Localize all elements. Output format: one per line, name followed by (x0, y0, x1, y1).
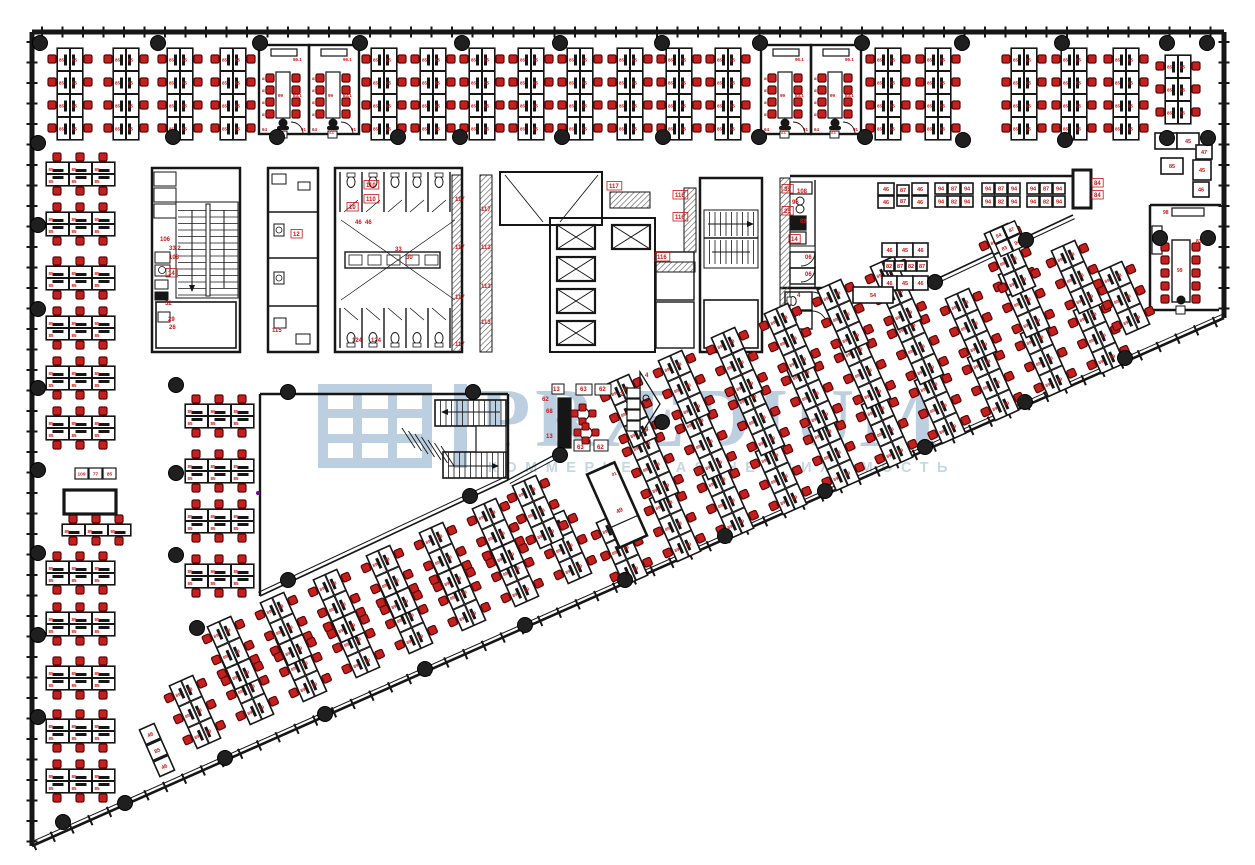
column-dot (655, 415, 670, 430)
svg-text:108: 108 (169, 255, 180, 261)
svg-text:85: 85 (520, 104, 526, 109)
svg-text:85: 85 (169, 81, 175, 86)
svg-text:85: 85 (814, 76, 819, 81)
chair-icon (1161, 269, 1169, 277)
chair-icon (818, 74, 826, 82)
desk-cluster: 858585858585 (46, 257, 115, 299)
svg-text:85: 85 (115, 58, 121, 63)
print-area (552, 384, 611, 451)
svg-text:124: 124 (371, 338, 382, 344)
svg-text:85: 85 (95, 333, 101, 338)
chair-icon (411, 101, 419, 109)
elevator-shaft (557, 321, 595, 345)
room-number-label: 113 (481, 320, 491, 326)
chair-icon (53, 357, 61, 365)
chair-icon (768, 98, 776, 106)
desk-cluster: 8585858585858585 (211, 48, 255, 140)
chair-icon (952, 55, 960, 63)
chair-icon (76, 441, 84, 449)
column-dot (656, 130, 671, 145)
chair-icon (158, 55, 166, 63)
chair-icon (99, 203, 107, 211)
svg-text:85: 85 (1167, 111, 1173, 116)
svg-text:85: 85 (730, 104, 736, 109)
chair-icon (545, 78, 553, 86)
desk-cluster: 8585858585858585 (158, 48, 202, 140)
chair-icon (794, 74, 802, 82)
hatched-walls (452, 175, 790, 352)
chair-icon (76, 637, 84, 645)
chair-icon (292, 98, 300, 106)
svg-text:94: 94 (1011, 187, 1018, 193)
floor-plan-svg: 8585858585858585858585858585858585858585… (0, 0, 1255, 865)
cafe-table: 46 (878, 196, 894, 208)
room-number-label: 117 (455, 295, 465, 301)
chair-icon (342, 98, 350, 106)
desk-cluster: 898989898989 (641, 485, 709, 566)
svg-text:87: 87 (951, 187, 957, 193)
chair-icon (316, 98, 324, 106)
column-dot (1153, 231, 1168, 246)
desk-cluster: 858585858585 (46, 307, 115, 349)
chair-icon (902, 78, 910, 86)
svg-text:85: 85 (764, 76, 769, 81)
chair-icon (545, 101, 553, 109)
svg-text:85: 85 (1115, 81, 1121, 86)
svg-text:83.1: 83.1 (293, 93, 302, 98)
room-number-label: 4 (645, 373, 649, 379)
chair-icon (53, 203, 61, 211)
svg-text:46: 46 (917, 200, 923, 206)
chair-icon (211, 101, 219, 109)
desk-cluster: 898989898989 (853, 391, 921, 472)
chair-icon (247, 101, 255, 109)
svg-text:85: 85 (520, 81, 526, 86)
chair-icon (693, 101, 701, 109)
svg-text:85: 85 (72, 736, 78, 741)
svg-text:85: 85 (1063, 81, 1069, 86)
svg-text:85: 85 (386, 127, 392, 132)
chair-icon (1038, 101, 1046, 109)
column-dot (753, 36, 768, 51)
svg-text:85: 85 (211, 464, 217, 469)
chair-icon (693, 55, 701, 63)
column-dot (31, 546, 46, 561)
svg-text:85: 85 (814, 100, 819, 105)
desk-cluster: 858585858585 (185, 450, 254, 492)
svg-text:85: 85 (940, 58, 946, 63)
svg-text:85: 85 (49, 786, 55, 791)
cafe-table: 85 (1161, 158, 1183, 174)
cafe-table: 54 (853, 287, 893, 303)
column-dot (655, 36, 670, 51)
accent-dot (256, 491, 260, 495)
svg-text:85: 85 (1026, 81, 1032, 86)
svg-text:85: 85 (88, 529, 94, 534)
svg-text:10: 10 (349, 205, 356, 211)
column-dot (31, 302, 46, 317)
chair-icon (192, 395, 200, 403)
svg-text:85: 85 (188, 409, 194, 414)
svg-text:85: 85 (422, 58, 428, 63)
chair-icon (362, 78, 370, 86)
chair-icon (247, 78, 255, 86)
chair-icon (1140, 55, 1148, 63)
chair-icon (140, 124, 148, 132)
stairwell-left (152, 168, 240, 352)
svg-text:85: 85 (95, 774, 101, 779)
svg-text:124: 124 (352, 338, 363, 344)
svg-text:85: 85 (927, 81, 933, 86)
svg-text:85: 85 (386, 58, 392, 63)
svg-text:85: 85 (49, 671, 55, 676)
chair-icon (902, 101, 910, 109)
chair-icon (53, 341, 61, 349)
column-dot (31, 136, 46, 151)
chair-icon (76, 407, 84, 415)
chair-icon (247, 55, 255, 63)
chair-icon (952, 101, 960, 109)
chair-icon (292, 74, 300, 82)
chair-icon (545, 124, 553, 132)
svg-text:94: 94 (985, 187, 992, 193)
desk-cluster: 858585858585 (46, 203, 115, 245)
svg-text:85: 85 (730, 58, 736, 63)
svg-text:85: 85 (681, 127, 687, 132)
cafe-table: 94 (1027, 183, 1039, 194)
chair-icon (76, 586, 84, 594)
svg-text:96.1: 96.1 (343, 57, 352, 62)
chair-icon (1140, 124, 1148, 132)
chair-icon (266, 86, 274, 94)
svg-text:85: 85 (312, 112, 317, 117)
svg-text:21: 21 (329, 130, 335, 135)
column-dot (56, 815, 71, 830)
chair-icon (496, 78, 504, 86)
svg-text:4: 4 (797, 293, 801, 299)
cafe-table: 94 (1053, 196, 1065, 207)
svg-text:85: 85 (72, 786, 78, 791)
cafe-table: 87 (895, 261, 905, 271)
svg-text:85: 85 (95, 736, 101, 741)
svg-text:85: 85 (582, 81, 588, 86)
svg-text:85: 85 (632, 81, 638, 86)
svg-text:85: 85 (471, 104, 477, 109)
svg-text:85: 85 (95, 566, 101, 571)
svg-text:85: 85 (619, 127, 625, 132)
column-dot (166, 130, 181, 145)
svg-text:85: 85 (435, 104, 441, 109)
cafe-table: 47 (1196, 145, 1212, 159)
room-number-label: 62 (599, 387, 606, 393)
desk-cluster: 898989898989 (747, 438, 815, 519)
svg-text:85: 85 (59, 127, 65, 132)
svg-text:85: 85 (312, 76, 317, 81)
svg-text:85: 85 (927, 58, 933, 63)
desk-cluster: 8585858585858585 (608, 48, 652, 140)
svg-text:85: 85 (235, 81, 241, 86)
desk-cluster: 858585858585 (46, 603, 115, 645)
chair-icon (76, 357, 84, 365)
chair-icon (48, 124, 56, 132)
svg-text:85: 85 (877, 58, 883, 63)
column-dot (956, 133, 971, 148)
cafe-table: 82 (906, 261, 916, 271)
svg-text:85: 85 (484, 127, 490, 132)
chair-icon (1161, 282, 1169, 290)
svg-text:33.2: 33.2 (169, 246, 181, 252)
chair-icon (866, 101, 874, 109)
chair-icon (1156, 85, 1164, 93)
chair-icon (1088, 78, 1096, 86)
chair-icon (104, 101, 112, 109)
svg-text:94: 94 (1056, 200, 1063, 206)
svg-text:85: 85 (927, 104, 933, 109)
svg-text:85: 85 (235, 127, 241, 132)
room-number-label: 46 (355, 220, 362, 226)
chair-icon (558, 101, 566, 109)
svg-text:85: 85 (95, 229, 101, 234)
svg-text:85: 85 (1063, 104, 1069, 109)
chair-icon (1088, 124, 1096, 132)
svg-text:85: 85 (262, 112, 267, 117)
chair-icon (215, 484, 223, 492)
chair-icon (1156, 108, 1164, 116)
svg-text:85: 85 (111, 529, 117, 534)
svg-text:85: 85 (128, 58, 134, 63)
chair-icon (608, 78, 616, 86)
svg-text:117: 117 (481, 207, 491, 213)
chair-icon (644, 101, 652, 109)
desk-cluster: 858585858585 (46, 357, 115, 399)
chair-icon (768, 86, 776, 94)
chair-icon (1104, 124, 1112, 132)
chair-icon (194, 101, 202, 109)
chair-icon (99, 257, 107, 265)
svg-text:85: 85 (211, 526, 217, 531)
chair-icon (545, 55, 553, 63)
svg-text:85: 85 (49, 229, 55, 234)
svg-text:85: 85 (95, 383, 101, 388)
chair-icon (866, 78, 874, 86)
svg-text:85: 85 (72, 629, 78, 634)
chair-icon (238, 429, 246, 437)
chair-icon (316, 110, 324, 118)
cafe-table: 94 (982, 183, 994, 194)
svg-text:85: 85 (95, 578, 101, 583)
svg-text:68: 68 (546, 409, 553, 415)
chair-icon (238, 484, 246, 492)
svg-text:45: 45 (902, 281, 908, 287)
svg-text:85: 85 (49, 566, 55, 571)
column-dot (858, 130, 873, 145)
svg-text:85: 85 (764, 112, 769, 117)
svg-text:85: 85 (72, 383, 78, 388)
room-number-label: 117 (481, 207, 491, 213)
chair-icon (447, 78, 455, 86)
chair-icon (1088, 101, 1096, 109)
svg-text:87: 87 (900, 188, 906, 194)
svg-text:85: 85 (72, 104, 78, 109)
svg-text:117: 117 (609, 184, 619, 190)
chair-icon (99, 341, 107, 349)
chair-icon (215, 589, 223, 597)
chair-icon (1192, 256, 1200, 264)
desk-cluster: 898989898989 (959, 344, 1027, 425)
chair-icon (657, 78, 665, 86)
room-number-label: 106 (160, 237, 171, 243)
column-dot (31, 381, 46, 396)
svg-text:85: 85 (222, 127, 228, 132)
svg-text:85: 85 (1180, 111, 1186, 116)
chair-icon (99, 187, 107, 195)
svg-text:85: 85 (435, 81, 441, 86)
svg-text:85: 85 (49, 421, 55, 426)
svg-text:85: 85 (234, 476, 240, 481)
chair-icon (53, 441, 61, 449)
cafe-table: 46 (912, 183, 928, 195)
svg-text:85: 85 (211, 409, 217, 414)
chair-icon (1038, 124, 1046, 132)
column-dot (190, 621, 205, 636)
chair-icon (1104, 55, 1112, 63)
chair-icon (362, 101, 370, 109)
svg-text:46: 46 (355, 220, 362, 226)
chair-icon (99, 552, 107, 560)
svg-text:85: 85 (1128, 58, 1134, 63)
cafe-table: 87 (995, 183, 1007, 194)
room-number-label: 33 (395, 247, 402, 253)
svg-text:85: 85 (222, 104, 228, 109)
svg-text:85: 85 (49, 283, 55, 288)
svg-text:85: 85 (234, 421, 240, 426)
room-number-label: 117 (455, 197, 465, 203)
chair-icon (48, 78, 56, 86)
chair-icon (76, 203, 84, 211)
svg-text:85: 85 (95, 179, 101, 184)
svg-text:96.1: 96.1 (845, 57, 854, 62)
svg-text:85: 85 (107, 472, 113, 478)
cafe-table: 94 (961, 196, 973, 207)
chair-icon (342, 74, 350, 82)
chair-icon (192, 589, 200, 597)
chair-icon (460, 78, 468, 86)
svg-text:85: 85 (619, 58, 625, 63)
chair-icon (594, 101, 602, 109)
svg-text:115: 115 (272, 328, 282, 334)
svg-text:99: 99 (1177, 268, 1183, 274)
svg-text:85: 85 (95, 683, 101, 688)
chair-icon (1052, 55, 1060, 63)
meeting-room: 96.18585858583.199642191 (309, 45, 359, 138)
svg-text:85: 85 (730, 81, 736, 86)
column-dot (1018, 395, 1033, 410)
chair-icon (215, 429, 223, 437)
svg-text:85: 85 (632, 127, 638, 132)
chair-icon (794, 98, 802, 106)
desk-cluster: 858585858585 (46, 153, 115, 195)
svg-text:85: 85 (72, 127, 78, 132)
chair-icon (76, 603, 84, 611)
elevator-shaft (557, 289, 595, 313)
chair-icon (99, 391, 107, 399)
room-number-label: 13 (546, 434, 553, 440)
desk-cluster: 858585858585 (46, 657, 115, 699)
svg-text:85: 85 (940, 127, 946, 132)
desk-cluster: 858585858585 (46, 760, 115, 802)
column-dot (553, 36, 568, 51)
svg-text:116: 116 (675, 215, 685, 221)
svg-text:85: 85 (386, 81, 392, 86)
chair-icon (608, 101, 616, 109)
chair-icon (1002, 55, 1010, 63)
chair-icon (53, 586, 61, 594)
svg-text:96.1: 96.1 (795, 57, 804, 62)
chair-icon (215, 395, 223, 403)
svg-text:85: 85 (59, 81, 65, 86)
chair-icon (657, 55, 665, 63)
svg-text:94: 94 (1030, 200, 1037, 206)
chair-icon (916, 78, 924, 86)
svg-text:85: 85 (95, 283, 101, 288)
desk-cluster: 8585858585858585 (866, 48, 910, 140)
desk-cluster: 898989898989 (800, 414, 868, 495)
column-dot (281, 573, 296, 588)
chair-icon (76, 187, 84, 195)
svg-text:85: 85 (484, 58, 490, 63)
column-dot (169, 466, 184, 481)
svg-text:85: 85 (188, 581, 194, 586)
chair-icon (53, 291, 61, 299)
svg-text:85: 85 (533, 104, 539, 109)
svg-text:83.1: 83.1 (845, 93, 854, 98)
column-dot (169, 378, 184, 393)
svg-text:46: 46 (1198, 188, 1204, 194)
svg-text:85: 85 (72, 58, 78, 63)
svg-text:85: 85 (128, 127, 134, 132)
svg-text:85: 85 (234, 569, 240, 574)
svg-text:52: 52 (165, 301, 172, 307)
svg-text:21: 21 (831, 130, 837, 135)
chair-icon (644, 124, 652, 132)
column-dot (31, 463, 46, 478)
cafe-table: 94 (1053, 183, 1065, 194)
svg-text:85: 85 (1115, 127, 1121, 132)
meeting-room: 96.18585858583.199642191 (259, 45, 309, 138)
chair-icon (768, 74, 776, 82)
desk-cluster: 858585 (62, 515, 131, 545)
svg-text:85: 85 (182, 58, 188, 63)
shear-wall (655, 262, 695, 272)
cafe-table: 87 (917, 261, 927, 271)
svg-text:85: 85 (764, 88, 769, 93)
chair-icon (99, 153, 107, 161)
chair-icon (411, 124, 419, 132)
chair-icon (99, 794, 107, 802)
svg-text:85: 85 (188, 526, 194, 531)
chair-icon (194, 55, 202, 63)
svg-text:85: 85 (764, 100, 769, 105)
svg-text:85: 85 (484, 104, 490, 109)
chair-icon (84, 124, 92, 132)
chair-icon (99, 637, 107, 645)
svg-text:85: 85 (1063, 127, 1069, 132)
svg-text:85: 85 (569, 58, 575, 63)
chair-icon (916, 124, 924, 132)
chair-icon (1088, 55, 1096, 63)
svg-text:85: 85 (211, 476, 217, 481)
svg-text:46: 46 (917, 248, 923, 254)
